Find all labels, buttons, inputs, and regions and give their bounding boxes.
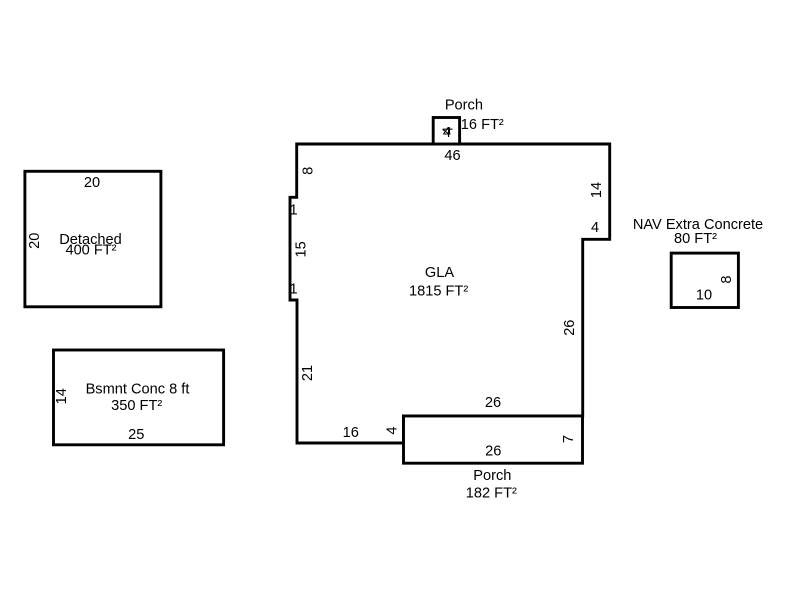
svg-text:8: 8 <box>719 276 735 284</box>
svg-text:7: 7 <box>561 435 577 443</box>
svg-text:26: 26 <box>485 395 501 411</box>
svg-text:400 FT²: 400 FT² <box>65 243 116 259</box>
svg-text:14: 14 <box>589 182 605 198</box>
svg-text:1: 1 <box>289 203 297 219</box>
svg-text:16: 16 <box>343 425 359 441</box>
svg-text:21: 21 <box>300 365 316 381</box>
svg-text:GLA: GLA <box>425 265 454 281</box>
svg-text:80 FT²: 80 FT² <box>674 231 717 247</box>
svg-text:1815 FT²: 1815 FT² <box>409 283 468 299</box>
svg-text:16 FT²: 16 FT² <box>461 117 504 133</box>
svg-text:15: 15 <box>293 241 309 257</box>
svg-text:182 FT²: 182 FT² <box>466 486 517 502</box>
svg-text:8: 8 <box>300 167 316 175</box>
svg-text:25: 25 <box>128 427 144 443</box>
svg-text:Porch: Porch <box>445 98 483 114</box>
svg-text:1: 1 <box>289 282 297 298</box>
svg-text:350 FT²: 350 FT² <box>111 398 162 414</box>
svg-text:4: 4 <box>440 127 456 135</box>
svg-text:10: 10 <box>696 288 712 304</box>
svg-text:20: 20 <box>84 175 100 191</box>
svg-text:46: 46 <box>444 148 460 164</box>
svg-text:4: 4 <box>385 426 401 434</box>
svg-text:14: 14 <box>54 388 70 404</box>
svg-text:20: 20 <box>27 233 43 249</box>
svg-text:4: 4 <box>591 220 599 236</box>
svg-text:26: 26 <box>562 320 578 336</box>
svg-text:Porch: Porch <box>473 468 511 484</box>
svg-text:26: 26 <box>485 444 501 460</box>
svg-text:Bsmnt Conc 8 ft: Bsmnt Conc 8 ft <box>86 381 190 397</box>
